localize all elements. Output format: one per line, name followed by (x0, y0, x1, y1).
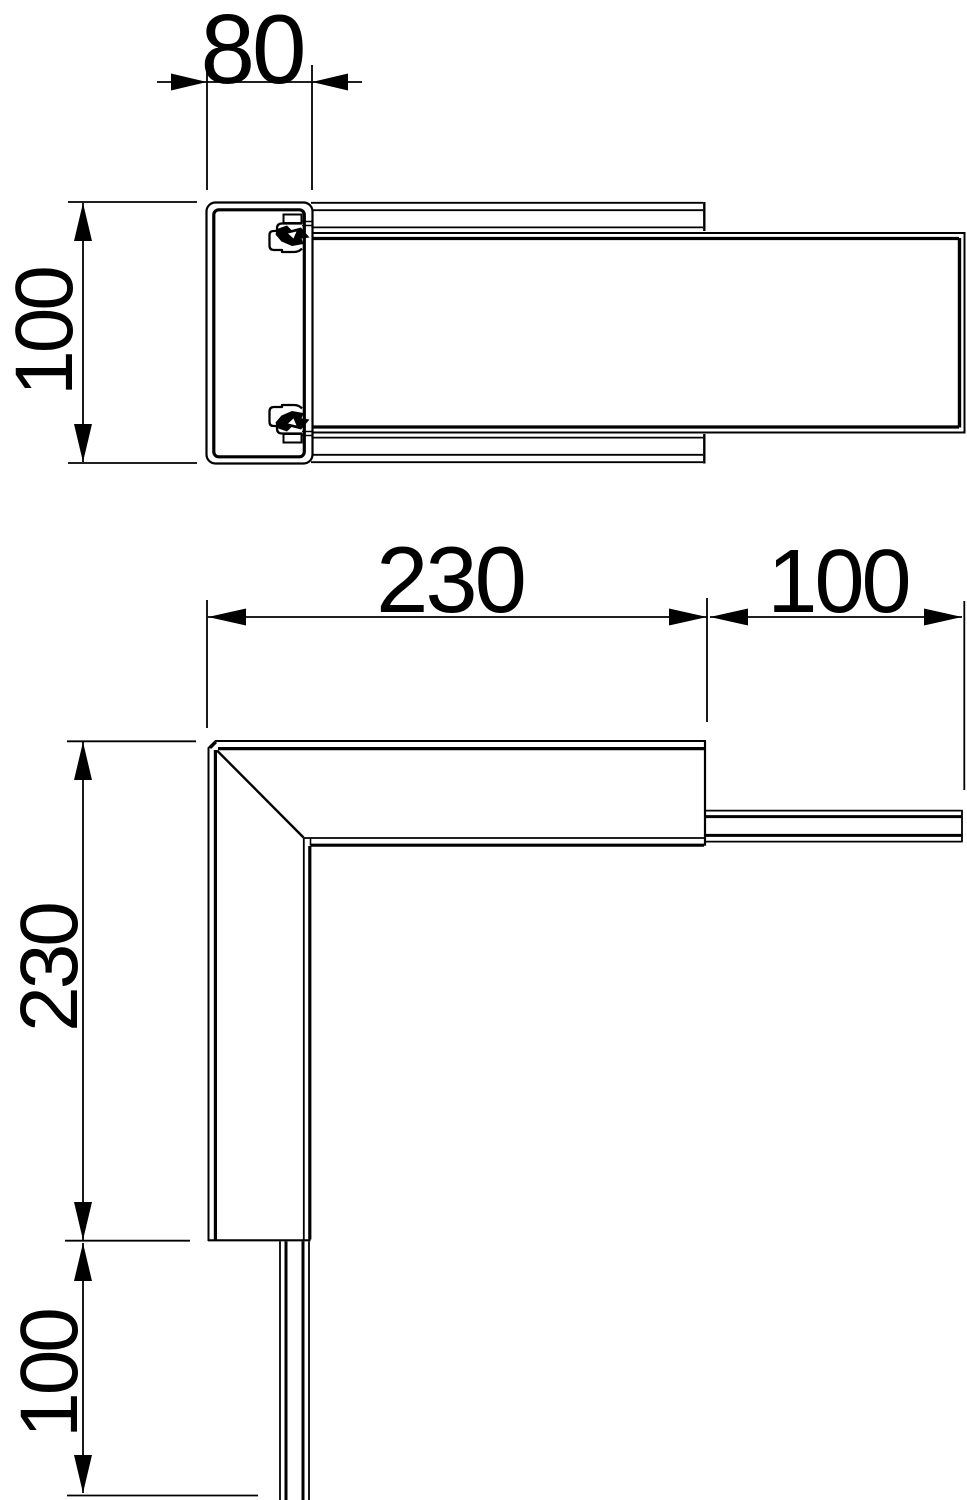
side-wall-bottom (311, 434, 704, 464)
dim-label-width: 100 (767, 532, 908, 632)
arrowhead (208, 609, 246, 626)
arrowhead (312, 74, 348, 91)
duct-rail-bottom (280, 1242, 309, 1500)
dim-label-length-vertical: 230 (4, 904, 95, 1032)
corner-chamfer (210, 742, 216, 748)
dimension-drawing-canvas: 80 100 (0, 0, 967, 1500)
arrowhead (74, 1202, 92, 1240)
dim-80: 80 (157, 0, 362, 190)
arrowhead (74, 1243, 92, 1281)
side-wall-top (311, 202, 704, 231)
dim-100-vertical: 100 (4, 1243, 258, 1496)
corner-cover-body (208, 741, 706, 1241)
dim-230-horizontal: 230 (207, 527, 707, 728)
arrowhead (74, 203, 92, 241)
dim-230-vertical: 230 (4, 741, 196, 1240)
dim-label-width-vertical: 100 (4, 1310, 95, 1438)
dim-label-height: 100 (0, 268, 90, 396)
technical-drawing-page: 80 100 (0, 0, 967, 1500)
arrowhead (74, 424, 92, 462)
arrowhead (669, 609, 707, 626)
dim-100-side: 100 (0, 202, 197, 463)
corner-plan-view: 230 100 230 100 (4, 527, 964, 1500)
side-profile-view: 80 100 (0, 0, 965, 464)
arrowhead (710, 609, 748, 626)
arrowhead (924, 609, 962, 626)
duct-rail-right (706, 810, 963, 842)
dim-label-width: 80 (200, 0, 303, 104)
arrowhead (74, 742, 92, 780)
dim-100-horizontal: 100 (710, 532, 964, 790)
miter-line (217, 751, 304, 838)
arrowhead (74, 1455, 92, 1493)
dim-label-length: 230 (376, 527, 524, 632)
cover-panel (312, 233, 965, 433)
